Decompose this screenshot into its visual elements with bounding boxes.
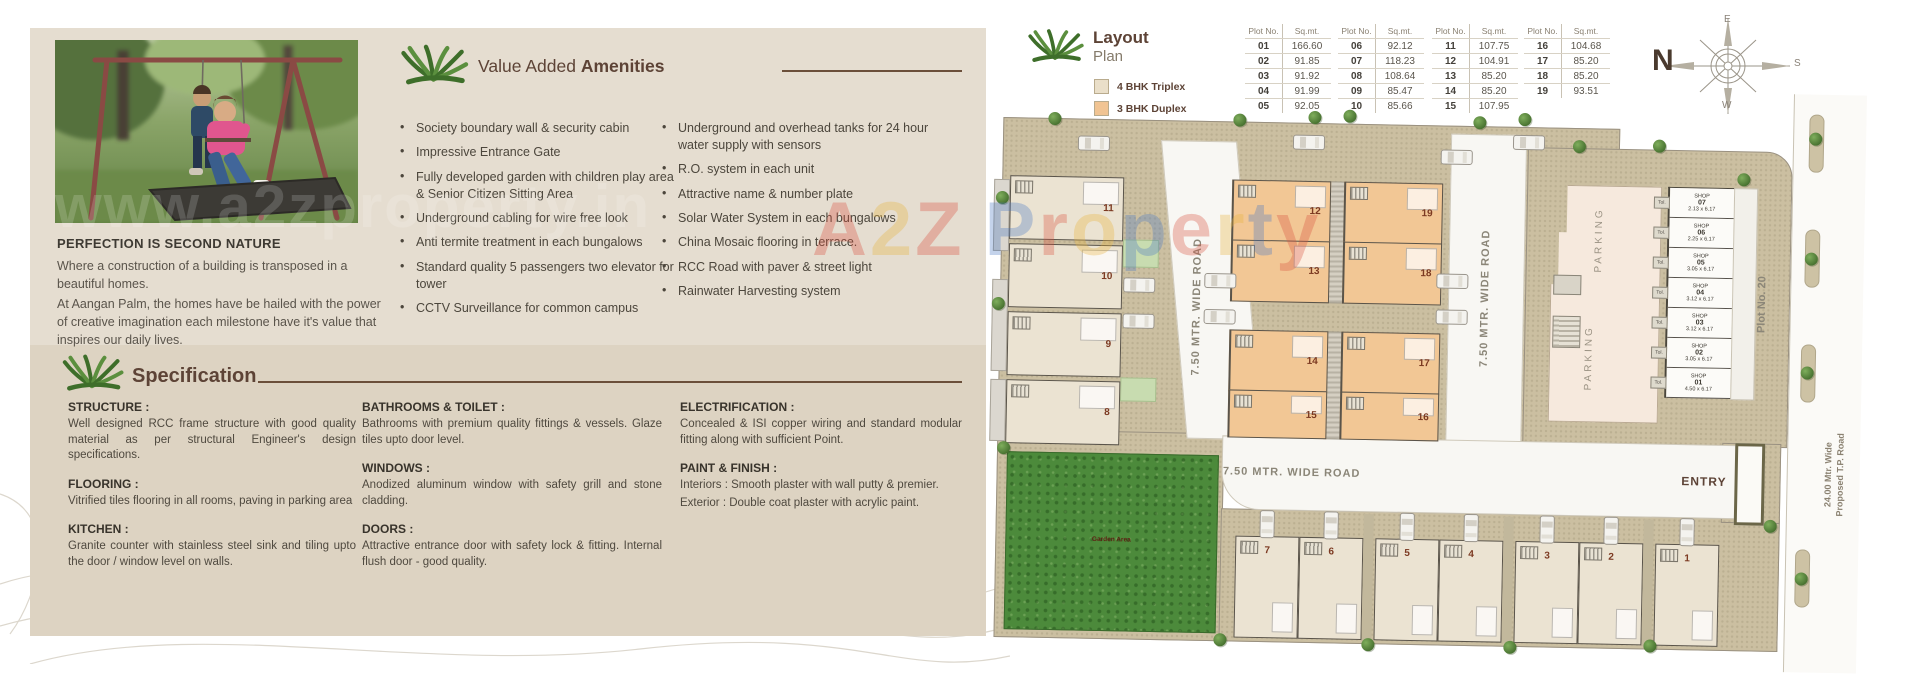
plot-house-2: 2 xyxy=(1577,542,1643,645)
plot-house-16: 16 xyxy=(1339,392,1439,442)
plot-house-4: 4 xyxy=(1437,539,1503,642)
spec-paint-finish: PAINT & FINISH : Interiors : Smooth plas… xyxy=(680,461,962,511)
car-icon xyxy=(1603,517,1619,545)
plot-house-3: 3 xyxy=(1513,541,1579,644)
layout-plan-title-line1: Layout xyxy=(1093,28,1149,48)
car-icon xyxy=(1078,135,1110,151)
entry-gate xyxy=(1734,443,1766,526)
table-row: 08108.64 xyxy=(1338,68,1424,83)
spec-flooring: FLOORING : Vitrified tiles flooring in a… xyxy=(68,477,356,510)
entry-label: ENTRY xyxy=(1646,473,1726,489)
table-row: 15107.95 xyxy=(1432,98,1518,113)
legend-item-triplex: 4 BHK Triplex xyxy=(1094,79,1185,94)
plot-table-group-4: Plot No.Sq.mt. 16104.68 1785.20 1885.20 … xyxy=(1524,24,1610,98)
car-icon xyxy=(1123,277,1155,293)
amenities-title-bold: Amenities xyxy=(581,56,665,76)
shop-unit-01: Tol.SHOP014.50 x 6.17 xyxy=(1666,368,1731,399)
car-icon xyxy=(1539,515,1555,543)
amenity-item: Impressive Entrance Gate xyxy=(400,144,682,161)
car-icon xyxy=(1399,513,1415,541)
table-row: 1385.20 xyxy=(1432,68,1518,83)
car-icon xyxy=(1436,273,1468,289)
amenity-item: Underground and overhead tanks for 24 ho… xyxy=(662,120,930,154)
shops-strip: Tol.SHOP072.13 x 6.17 Tol.SHOP062.25 x 6… xyxy=(1664,187,1734,399)
spec-structure: STRUCTURE : Well designed RCC frame stru… xyxy=(68,400,356,464)
plot-house-18: 18 xyxy=(1342,242,1442,306)
palm-logo-icon xyxy=(58,352,126,394)
tree-icon xyxy=(1213,633,1226,646)
tree-icon xyxy=(1361,638,1374,651)
plot-house-15: 15 xyxy=(1227,389,1327,439)
shop-unit-04: Tol.SHOP043.12 x 6.17 xyxy=(1668,278,1733,309)
table-row: 1785.20 xyxy=(1524,53,1610,68)
legend-swatch-triplex xyxy=(1094,79,1109,94)
shop-walkway xyxy=(1730,188,1758,400)
palm-logo-icon xyxy=(1024,26,1086,66)
table-row: 12104.91 xyxy=(1432,53,1518,68)
car-icon xyxy=(1122,313,1154,329)
table-row: 1085.66 xyxy=(1338,98,1424,113)
shop-unit-05: Tol.SHOP053.05 x 6.17 xyxy=(1668,248,1733,279)
spec-kitchen: KITCHEN : Granite counter with stainless… xyxy=(68,522,356,570)
amenity-item: Standard quality 5 passengers two elevat… xyxy=(400,259,682,293)
compass-e-label: E xyxy=(1724,14,1731,25)
compass-s-label: S xyxy=(1794,58,1801,69)
parking-label: PARKING xyxy=(1582,308,1595,408)
car-icon xyxy=(1323,511,1339,539)
amenity-item: R.O. system in each unit xyxy=(662,161,930,178)
tree-icon xyxy=(1518,113,1531,126)
spec-column-2: BATHROOMS & TOILET : Bathrooms with prem… xyxy=(362,400,662,583)
car-icon xyxy=(1436,309,1468,325)
road-label-tp: 24.00 Mtr. Wide Proposed T.P. Road xyxy=(1822,415,1848,535)
spec-doors: DOORS : Attractive entrance door with sa… xyxy=(362,522,662,570)
plot-table-group-3: Plot No.Sq.mt. 11107.75 12104.91 1385.20… xyxy=(1432,24,1518,113)
amenities-title-prefix: Value Added xyxy=(478,56,581,76)
tree-icon xyxy=(1503,641,1516,654)
garden-area: Garden Area xyxy=(1004,451,1219,633)
plot-house-14: 14 xyxy=(1228,329,1328,393)
table-row: 0692.12 xyxy=(1338,38,1424,53)
plot-house-19: 19 xyxy=(1343,182,1443,246)
amenities-divider xyxy=(782,70,962,72)
spec-windows: WINDOWS : Anodized aluminum window with … xyxy=(362,461,662,509)
compass-w-label: W xyxy=(1722,100,1731,111)
plot-house-9: 9 xyxy=(1006,311,1121,377)
watermark-a2z-property: A 2 Z P r o p e r t y xyxy=(812,186,1321,273)
table-row: 16104.68 xyxy=(1524,38,1610,53)
table-row: 0985.47 xyxy=(1338,83,1424,98)
plot-house-7: 7 xyxy=(1233,536,1299,639)
spec-bathrooms: BATHROOMS & TOILET : Bathrooms with prem… xyxy=(362,400,662,448)
spec-column-3: ELECTRIFICATION : Concealed & ISI copper… xyxy=(680,400,962,524)
car-icon xyxy=(1463,514,1479,542)
palm-logo-icon xyxy=(396,42,471,88)
plot-house-17: 17 xyxy=(1340,332,1440,396)
table-row: 1885.20 xyxy=(1524,68,1610,83)
neighbour-block xyxy=(991,279,1009,371)
car-icon xyxy=(1204,273,1236,289)
plot-house-1: 1 xyxy=(1653,544,1719,647)
table-row: 1993.51 xyxy=(1524,83,1610,98)
shop-unit-06: Tol.SHOP062.25 x 6.17 xyxy=(1669,218,1734,249)
stair-block xyxy=(1552,316,1581,349)
table-row: 0391.92 xyxy=(1245,68,1331,83)
shop-unit-07: Tol.SHOP072.13 x 6.17 xyxy=(1670,188,1735,219)
specification-divider xyxy=(258,381,962,383)
specification-title: Specification xyxy=(132,365,256,388)
legend-item-duplex: 3 BHK Duplex xyxy=(1094,101,1186,116)
amenity-item: Rainwater Harvesting system xyxy=(662,283,930,300)
table-row: 1485.20 xyxy=(1432,83,1518,98)
table-row: 0592.05 xyxy=(1245,98,1331,113)
spec-electrification: ELECTRIFICATION : Concealed & ISI copper… xyxy=(680,400,962,448)
watermark-url: www.a2zproperty.in xyxy=(55,172,651,241)
plot-20-label: Plot No. 20 xyxy=(1755,255,1769,355)
shop-unit-02: Tol.SHOP023.05 x 6.17 xyxy=(1667,338,1732,369)
layout-plan-title-line2: Plan xyxy=(1093,48,1123,65)
parking-label: PARKING xyxy=(1593,190,1606,290)
table-row: 01166.60 xyxy=(1245,38,1331,53)
site-plan: 7.50 MTR. WIDE ROAD 7.50 MTR. WIDE ROAD … xyxy=(983,79,1884,676)
shop-unit-03: Tol.SHOP033.12 x 6.17 xyxy=(1667,308,1732,339)
car-icon xyxy=(1441,149,1473,165)
car-icon xyxy=(1513,135,1545,151)
compass-n-label: N xyxy=(1652,44,1674,78)
car-icon xyxy=(1203,309,1235,325)
table-row: 0291.85 xyxy=(1245,53,1331,68)
grass-patch xyxy=(1120,377,1156,402)
spec-column-1: STRUCTURE : Well designed RCC frame stru… xyxy=(68,400,356,583)
plot-house-6: 6 xyxy=(1297,537,1363,640)
plot-house-5: 5 xyxy=(1373,538,1439,641)
neighbour-block xyxy=(989,379,1006,441)
intro-paragraph-2: At Aangan Palm, the homes have be hailed… xyxy=(57,296,387,349)
car-icon xyxy=(1293,135,1325,151)
car-icon xyxy=(1679,518,1695,546)
amenities-title: Value Added Amenities xyxy=(478,56,664,77)
legend-swatch-duplex xyxy=(1094,101,1109,116)
intro-paragraph-1: Where a construction of a building is tr… xyxy=(57,258,387,294)
table-row: 11107.75 xyxy=(1432,38,1518,53)
plot-table-group-1: Plot No.Sq.mt. 01166.60 0291.85 0391.92 … xyxy=(1245,24,1331,113)
amenity-item: Society boundary wall & security cabin xyxy=(400,120,682,137)
plot-table-group-2: Plot No.Sq.mt. 0692.12 07118.23 08108.64… xyxy=(1338,24,1424,113)
tree-icon xyxy=(1643,639,1656,652)
lift-block xyxy=(1553,275,1581,296)
table-row: 07118.23 xyxy=(1338,53,1424,68)
car-icon xyxy=(1259,510,1275,538)
plot-house-8: 8 xyxy=(1005,379,1120,445)
amenity-item: CCTV Surveillance for common campus xyxy=(400,300,682,317)
table-row: 0491.99 xyxy=(1245,83,1331,98)
